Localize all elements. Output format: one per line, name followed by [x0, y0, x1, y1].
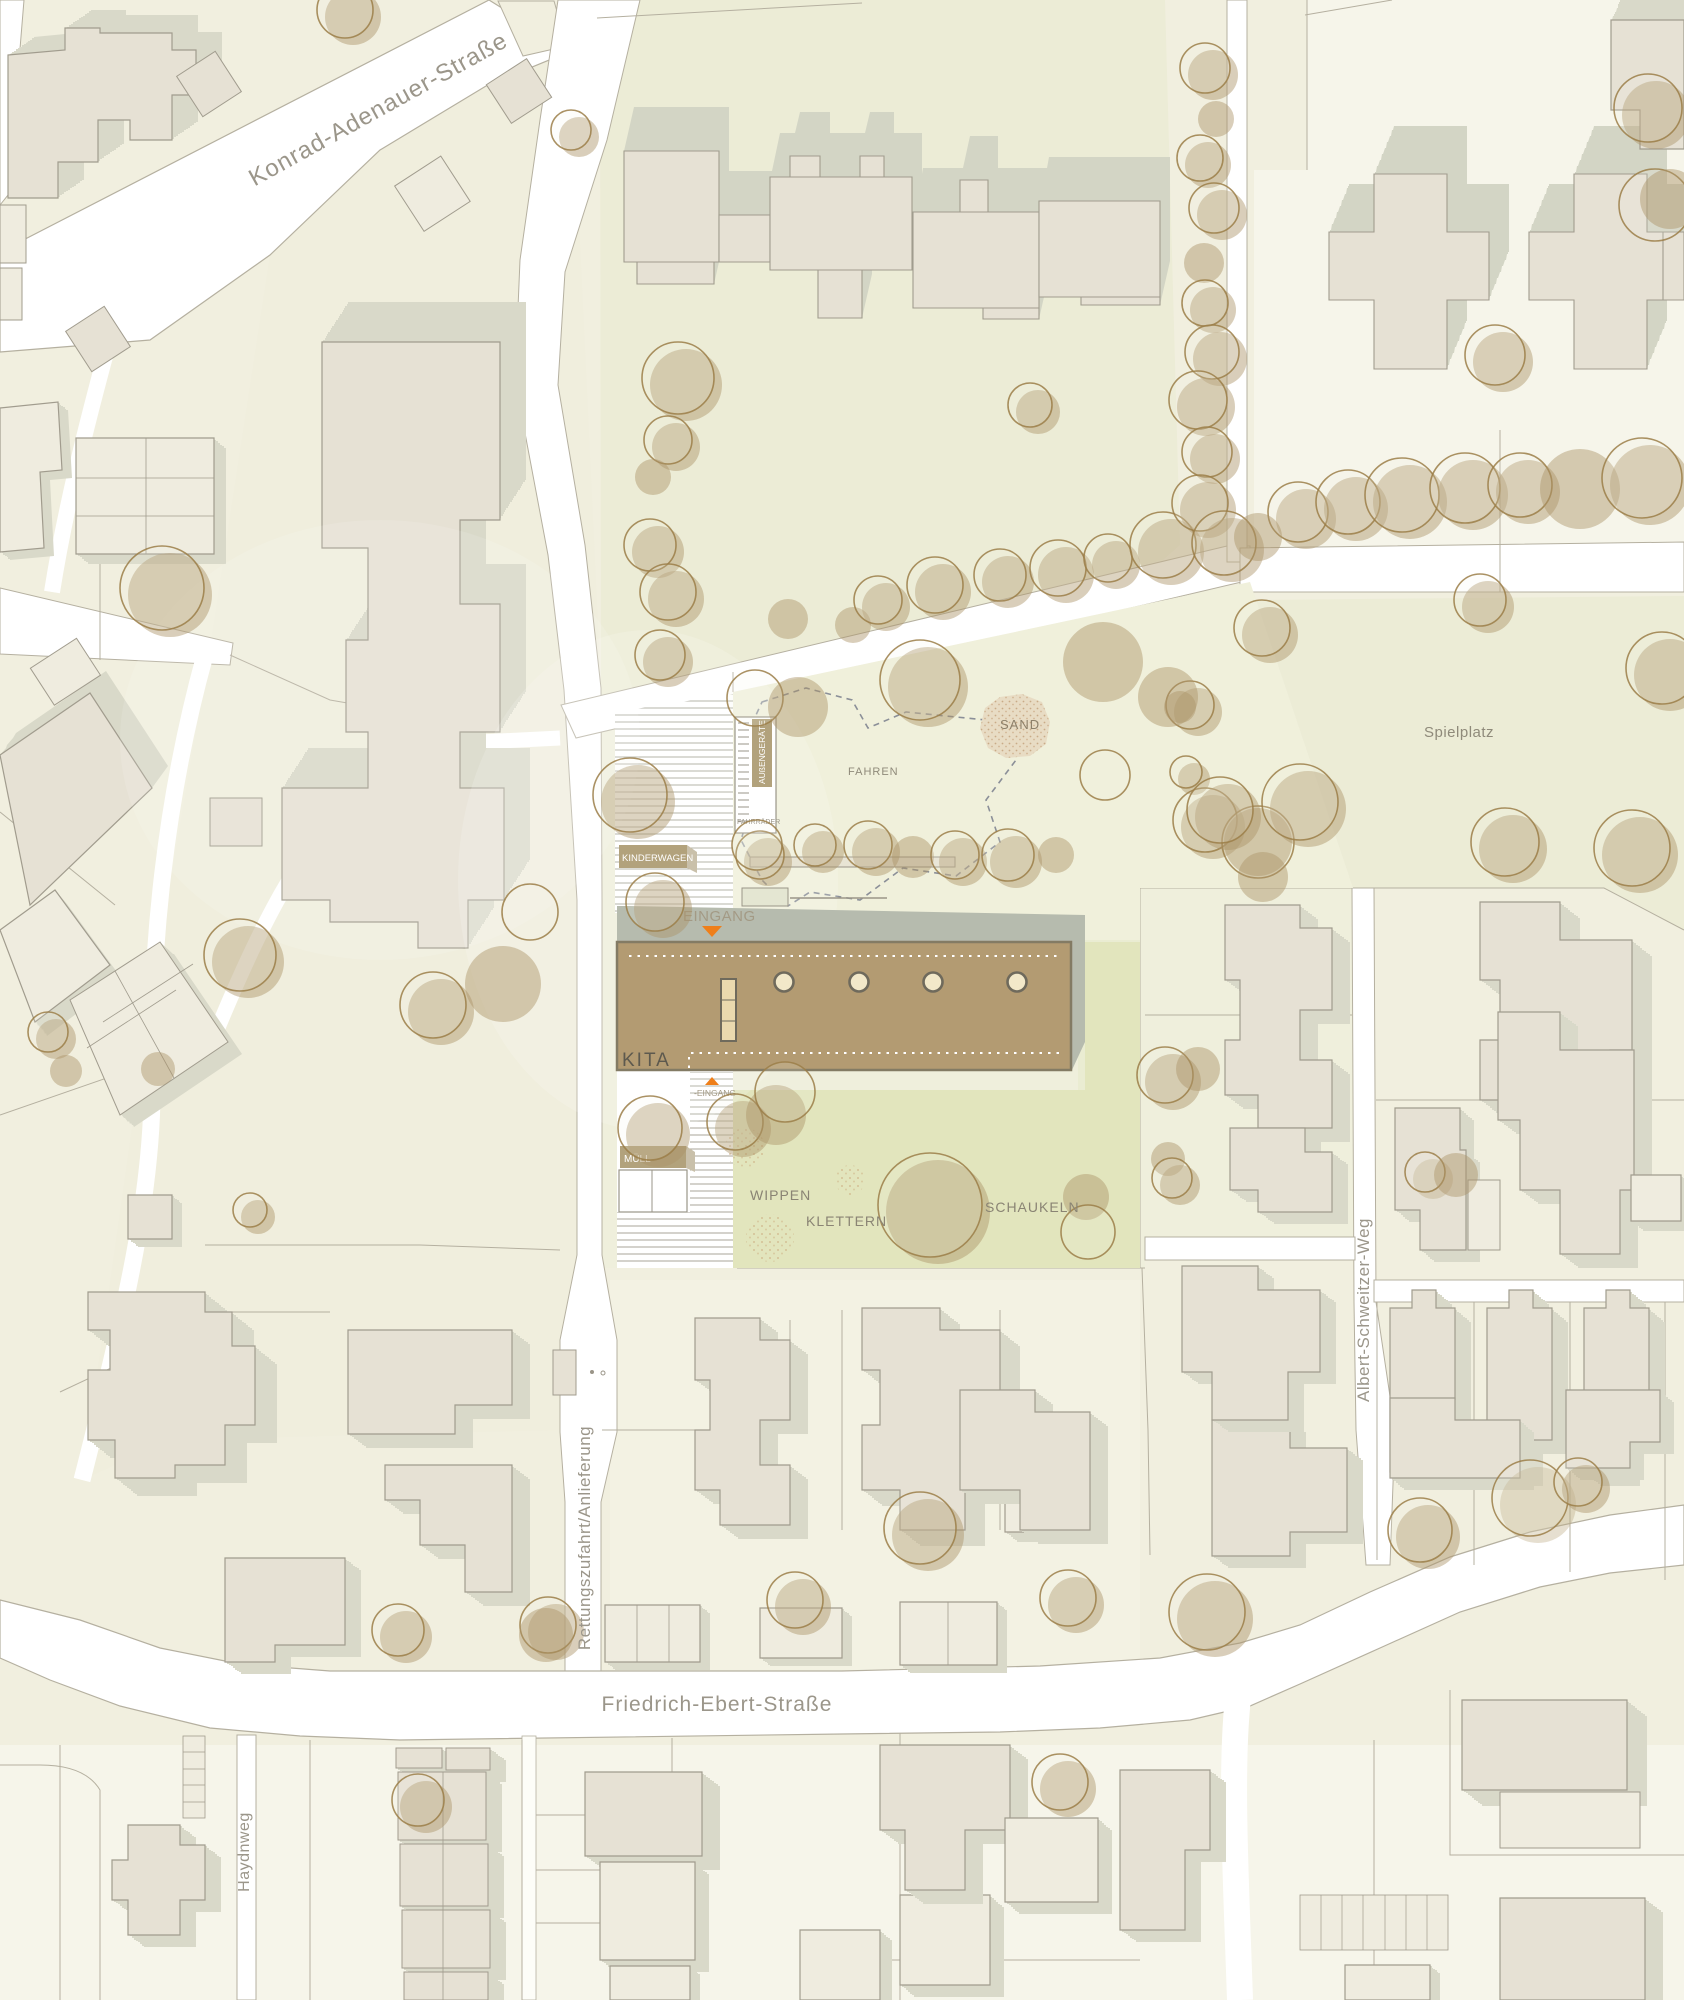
svg-text:Albert-Schweitzer-Weg: Albert-Schweitzer-Weg	[1354, 1218, 1373, 1402]
svg-text:Rettungszufahrt/Anlieferung: Rettungszufahrt/Anlieferung	[575, 1426, 594, 1650]
svg-text:KITA: KITA	[622, 1050, 671, 1071]
svg-text:Friedrich-Ebert-Straße: Friedrich-Ebert-Straße	[602, 1693, 833, 1716]
svg-text:KLETTERN: KLETTERN	[806, 1213, 887, 1229]
svg-text:Haydnweg: Haydnweg	[236, 1812, 253, 1892]
svg-text:Spielplatz: Spielplatz	[1424, 724, 1494, 741]
svg-text:WIPPEN: WIPPEN	[750, 1187, 811, 1203]
svg-text:KINDERWAGEN: KINDERWAGEN	[622, 853, 693, 864]
svg-text:FAHREN: FAHREN	[848, 766, 899, 778]
svg-text:EINGANG: EINGANG	[683, 908, 756, 925]
svg-text:SCHAUKELN: SCHAUKELN	[985, 1199, 1080, 1215]
svg-text:SAND: SAND	[1000, 717, 1040, 732]
svg-text:AUßENGERÄTE: AUßENGERÄTE	[757, 720, 767, 784]
